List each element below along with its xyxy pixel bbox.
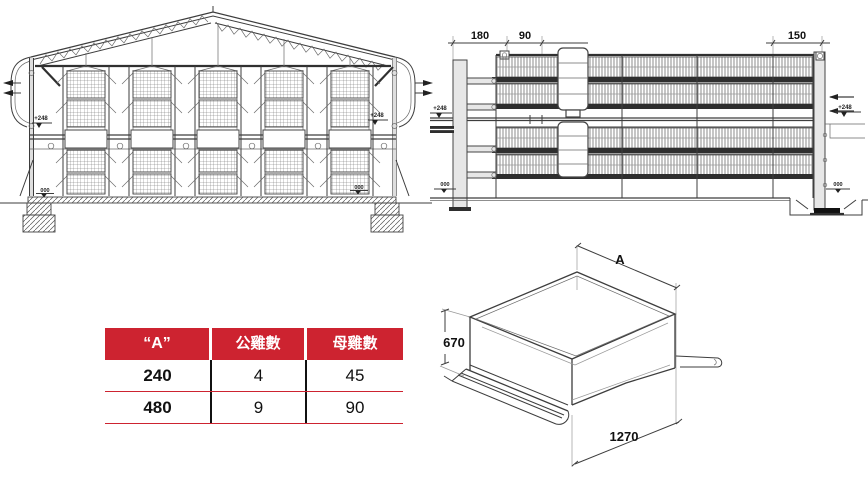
ground-and-foundations bbox=[0, 197, 432, 232]
iso-dim-1270-label: 1270 bbox=[610, 429, 639, 444]
level-zero-right: 000 bbox=[833, 182, 842, 188]
cell-a-480: 480 bbox=[105, 392, 212, 423]
roof-truss bbox=[31, 6, 395, 70]
cell-roosters-240: 4 bbox=[212, 360, 307, 391]
dim-label-180: 180 bbox=[471, 30, 489, 42]
column-header-a: “A” bbox=[105, 328, 209, 360]
level-plus248-right: +248 bbox=[838, 105, 852, 111]
feed-elevator bbox=[558, 48, 588, 177]
cell-hens-240: 45 bbox=[307, 360, 403, 391]
cage-battery-unit-3 bbox=[188, 66, 248, 196]
cell-roosters-480: 9 bbox=[212, 392, 307, 423]
cage-battery-unit-1 bbox=[56, 66, 116, 196]
dim-label-90: 90 bbox=[519, 30, 531, 42]
walkway-line bbox=[430, 115, 825, 124]
cage-isometric-drawing: A 670 1270 bbox=[430, 235, 730, 479]
level-plus248-left: +248 bbox=[433, 106, 447, 112]
column-header-roosters: 公雞數 bbox=[212, 328, 304, 360]
cage-battery-unit-5 bbox=[320, 66, 380, 196]
cross-section-drawing: +248 +248 000 000 bbox=[0, 0, 438, 240]
ground-and-pit bbox=[430, 198, 868, 215]
iso-cage-box bbox=[470, 272, 675, 405]
capacity-table: “A” 公雞數 母雞數 240 4 45 480 9 90 bbox=[105, 328, 403, 424]
datasheet-page: +248 +248 000 000 180 90 150 bbox=[0, 0, 868, 479]
capacity-table-header: “A” 公雞數 母雞數 bbox=[105, 328, 403, 360]
cell-hens-480: 90 bbox=[307, 392, 403, 423]
right-tray-stub bbox=[676, 356, 722, 367]
cell-a-240: 240 bbox=[105, 360, 212, 391]
egg-tray-channel bbox=[444, 369, 569, 424]
level-zero-left: 000 bbox=[440, 182, 449, 188]
iso-dim-a-label: A bbox=[615, 252, 625, 267]
level-plus248-left: +248 bbox=[34, 116, 48, 122]
cage-battery-unit-2 bbox=[122, 66, 182, 196]
table-row: 480 9 90 bbox=[105, 392, 403, 424]
cage-tiers bbox=[492, 51, 822, 198]
dim-label-150: 150 bbox=[788, 30, 806, 42]
level-plus248-right: +248 bbox=[370, 113, 384, 119]
cage-battery-unit-4 bbox=[254, 66, 314, 196]
iso-dim-670-label: 670 bbox=[443, 335, 465, 350]
side-elevation-drawing: 180 90 150 bbox=[430, 10, 868, 240]
table-row: 240 4 45 bbox=[105, 360, 403, 392]
column-header-hens: 母雞數 bbox=[307, 328, 403, 360]
